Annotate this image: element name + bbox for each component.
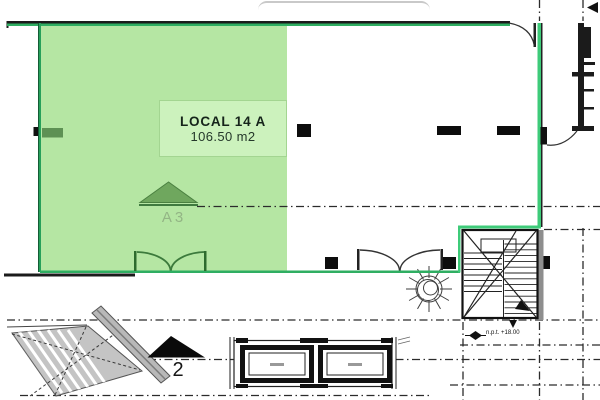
floor-plan-drawing: [0, 0, 600, 400]
column-in-unit: [42, 128, 63, 138]
section-2-triangle: [148, 336, 206, 358]
unit-bottom-boundary: [40, 271, 460, 274]
level-marker-icon: [465, 331, 486, 340]
door-top-right: [509, 23, 536, 47]
unit-name: LOCAL 14 A: [160, 114, 286, 129]
door-double-corridor: [357, 249, 443, 271]
level-note: n.p.t. +18.00: [486, 330, 556, 336]
door-right-facade: [547, 131, 577, 145]
north-arrow-icon: [587, 2, 598, 13]
unit-area: 106.50 m2: [160, 129, 286, 144]
section-2-label: 2: [163, 359, 193, 382]
section-a3-label: A3: [146, 209, 202, 226]
stairwell: [463, 230, 544, 328]
unit-label-box: LOCAL 14 A 106.50 m2: [159, 100, 287, 157]
unit-right-boundary: [538, 23, 542, 227]
bottom-left-wall: [4, 274, 135, 277]
right-facade: [541, 2, 599, 145]
top-wall: [7, 21, 510, 24]
elevator-shafts: [230, 337, 410, 389]
floor-plan-image: LOCAL 14 A 106.50 m2 A3 2 n.p.t. +18.00: [0, 0, 600, 400]
